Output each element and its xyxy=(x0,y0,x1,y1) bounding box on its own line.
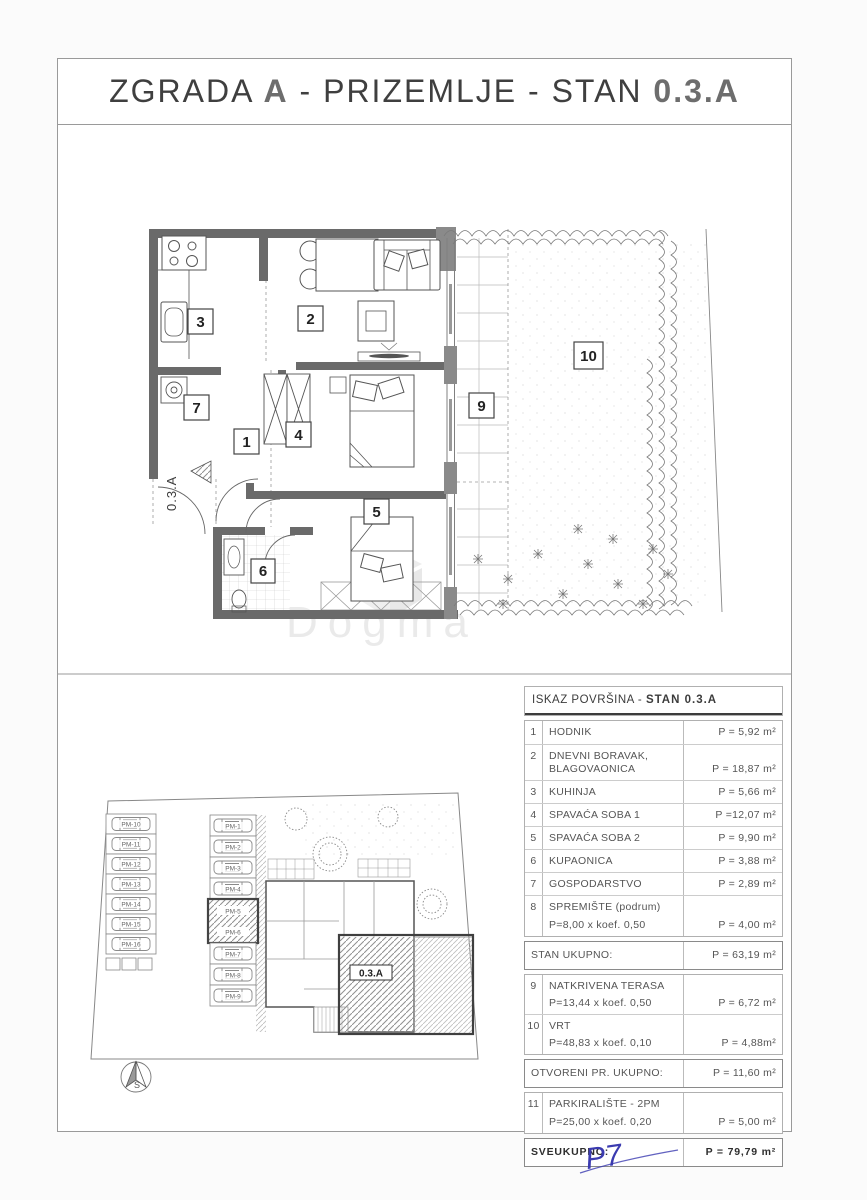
rooms-segment: 1HODNIKP = 5,92 m² 2DNEVNI BORAVAK, BLAG… xyxy=(524,720,783,936)
stove xyxy=(162,236,206,270)
parking-stall: PM-8 xyxy=(210,964,256,985)
room-label-6: 6 xyxy=(251,559,275,583)
parking-stall: PM-16 xyxy=(106,934,156,954)
parking-stall-assigned: PM-5 PM-6 xyxy=(208,899,258,943)
unit-garden-highlight xyxy=(414,937,473,1034)
parking-stall: PM-11 xyxy=(106,834,156,854)
table-title: ISKAZ POVRŠINA - xyxy=(532,694,646,706)
room-label-4: 4 xyxy=(286,422,311,447)
site-plan: PM-10 PM-11 PM-12 PM-13 PM-14 PM-15 PM-1… xyxy=(91,793,478,1092)
room-label-1: 1 xyxy=(234,429,259,454)
svg-text:PM-6: PM-6 xyxy=(225,930,241,937)
table-row: 1HODNIKP = 5,92 m² xyxy=(525,721,782,744)
svg-text:10: 10 xyxy=(580,348,597,365)
svg-text:2: 2 xyxy=(306,311,314,328)
handwritten-note: P7 xyxy=(560,1118,730,1198)
parking-stall: PM-9 xyxy=(210,985,256,1006)
north-compass: S xyxy=(121,1061,151,1092)
bathroom-sink xyxy=(224,539,244,575)
room-label-7: 7 xyxy=(184,395,209,420)
svg-text:PM-7: PM-7 xyxy=(225,952,241,959)
svg-text:PM-13: PM-13 xyxy=(121,882,141,889)
room-label-3: 3 xyxy=(188,309,213,334)
svg-text:PM-1: PM-1 xyxy=(225,824,241,831)
garden-boundary xyxy=(706,229,722,612)
svg-text:9: 9 xyxy=(477,398,485,415)
svg-text:PM-9: PM-9 xyxy=(225,994,241,1001)
site-garden-top xyxy=(301,799,456,857)
svg-text:1: 1 xyxy=(242,434,250,451)
dining-table xyxy=(316,239,378,291)
room-label-2: 2 xyxy=(298,306,323,331)
parking-stall: PM-10 xyxy=(106,814,156,834)
parking-stall: PM-15 xyxy=(106,914,156,934)
floor-plan: 0.3.A 1 2 3 4 5 6 7 9 10 xyxy=(149,227,722,619)
coffee-table xyxy=(358,301,394,341)
table-row: 9NATKRIVENA TERASAP=13,44 x koef. 0,50P … xyxy=(525,975,782,1015)
table-row: 8SPREMIŠTE (podrum)P=8,00 x koef. 0,50P … xyxy=(525,896,782,935)
area-table-header: ISKAZ POVRŠINA - STAN 0.3.A xyxy=(524,686,783,716)
svg-text:PM-8: PM-8 xyxy=(225,973,241,980)
table-row: 10VRTP=48,83 x koef. 0,10P = 4,88m² xyxy=(525,1015,782,1054)
parking-stall: PM-2 xyxy=(210,836,256,857)
washing-machine xyxy=(161,377,187,403)
svg-text:3: 3 xyxy=(196,314,204,331)
compass-label: S xyxy=(134,1080,140,1090)
bed-room4 xyxy=(330,375,414,467)
parking-stall: PM-3 xyxy=(210,857,256,878)
parking-stall: PM-7 xyxy=(210,943,256,964)
table-row: 3KUHINJAP = 5,66 m² xyxy=(525,781,782,804)
stan-ukupno-row: STAN UKUPNO:P = 63,19 m² xyxy=(524,941,783,970)
svg-text:PM-16: PM-16 xyxy=(121,942,141,949)
unit-highlight xyxy=(339,937,414,1032)
parking-stall: PM-4 xyxy=(210,878,256,899)
svg-text:7: 7 xyxy=(192,400,200,417)
svg-text:PM-3: PM-3 xyxy=(225,866,241,873)
sofa xyxy=(374,240,440,290)
svg-text:PM-15: PM-15 xyxy=(121,922,141,929)
svg-text:PM-14: PM-14 xyxy=(121,902,141,909)
scanned-page: ZGRADA A - PRIZEMLJE - STAN 0.3.A xyxy=(0,0,867,1200)
tv-console xyxy=(358,343,420,361)
toilet xyxy=(232,590,246,608)
parking-stall: PM-1 xyxy=(210,815,256,836)
entrance-unit-label: 0.3.A xyxy=(164,476,179,511)
entrance-marker: 0.3.A xyxy=(164,461,211,511)
room-label-10: 10 xyxy=(574,342,603,369)
site-unit-label: 0.3.A xyxy=(350,965,392,980)
drawing-sheet: ZGRADA A - PRIZEMLJE - STAN 0.3.A xyxy=(57,58,792,1132)
parking-stall: PM-14 xyxy=(106,894,156,914)
room-label-5: 5 xyxy=(364,499,389,524)
kitchen-fixtures xyxy=(158,236,206,359)
table-row: 4SPAVAĆA SOBA 1P =12,07 m² xyxy=(525,804,782,827)
table-title-unit: STAN 0.3.A xyxy=(646,694,717,706)
svg-text:PM-5: PM-5 xyxy=(225,909,241,916)
table-row: 7GOSPODARSTVOP = 2,89 m² xyxy=(525,873,782,896)
area-table: ISKAZ POVRŠINA - STAN 0.3.A 1HODNIKP = 5… xyxy=(524,686,783,1171)
svg-text:0.3.A: 0.3.A xyxy=(359,969,383,980)
table-row: 6KUPAONICAP = 3,88 m² xyxy=(525,850,782,873)
parking-left: PM-10 PM-11 PM-12 PM-13 PM-14 PM-15 PM-1… xyxy=(106,814,156,970)
svg-text:PM-12: PM-12 xyxy=(121,862,141,869)
garden-ground xyxy=(510,241,706,606)
room-label-9: 9 xyxy=(469,393,494,418)
tree xyxy=(417,889,447,919)
open-areas-segment: 9NATKRIVENA TERASAP=13,44 x koef. 0,50P … xyxy=(524,974,783,1056)
svg-text:5: 5 xyxy=(372,504,380,521)
bed-room5 xyxy=(351,517,413,601)
east-wall-windows xyxy=(444,238,457,619)
parking-stall: PM-13 xyxy=(106,874,156,894)
svg-text:6: 6 xyxy=(259,563,267,580)
svg-text:PM-2: PM-2 xyxy=(225,845,241,852)
building-footprint: 0.3.A xyxy=(266,859,473,1034)
svg-text:PM-4: PM-4 xyxy=(225,887,241,894)
parking-stall: PM-12 xyxy=(106,854,156,874)
svg-text:PM-11: PM-11 xyxy=(122,842,141,849)
table-row: 5SPAVAĆA SOBA 2P = 9,90 m² xyxy=(525,827,782,850)
terrace-tiles xyxy=(457,238,508,610)
svg-text:4: 4 xyxy=(294,427,303,444)
table-row: 2DNEVNI BORAVAK, BLAGOVAONICAP = 18,87 m… xyxy=(525,745,782,781)
parking-right: PM-1 PM-2 PM-3 PM-4 PM-5 PM-6 PM-7 PM-8 … xyxy=(208,815,258,1006)
svg-text:PM-10: PM-10 xyxy=(121,822,141,829)
otvoreni-ukupno-row: OTVORENI PR. UKUPNO:P = 11,60 m² xyxy=(524,1059,783,1088)
